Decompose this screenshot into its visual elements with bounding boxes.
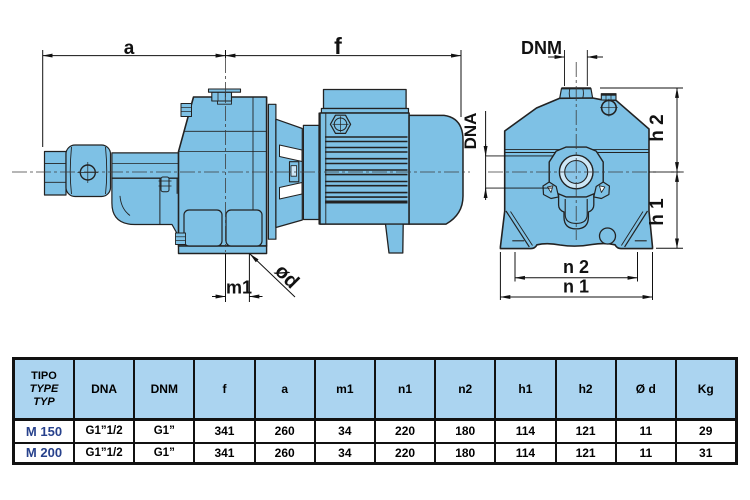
svg-text:a: a bbox=[124, 38, 135, 59]
svg-text:n 1: n 1 bbox=[563, 277, 589, 297]
svg-text:h 1: h 1 bbox=[647, 198, 668, 226]
svg-text:n 2: n 2 bbox=[563, 257, 589, 277]
svg-text:DNA: DNA bbox=[461, 113, 480, 150]
svg-text:DNM: DNM bbox=[521, 38, 562, 58]
svg-text:f: f bbox=[334, 33, 342, 59]
svg-text:m1: m1 bbox=[226, 278, 252, 298]
svg-text:h 2: h 2 bbox=[647, 114, 668, 141]
svg-text:ød: ød bbox=[270, 260, 303, 293]
